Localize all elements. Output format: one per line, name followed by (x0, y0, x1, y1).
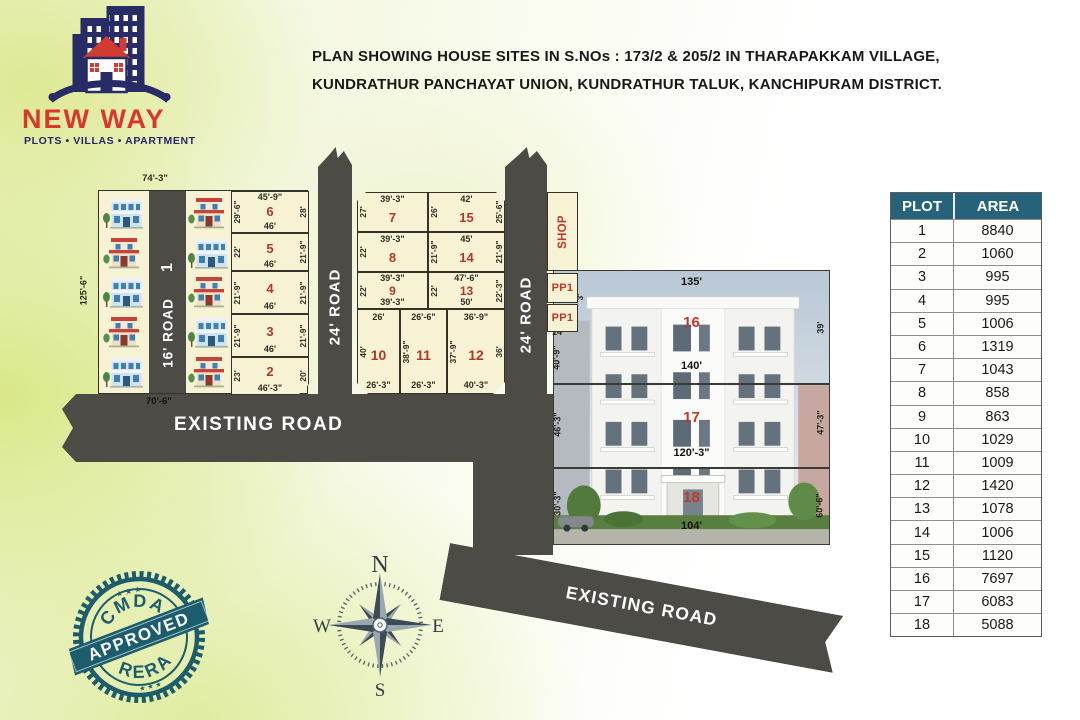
plot-5-bottom-dim: 46' (232, 260, 308, 269)
logo-name: NEW WAY (22, 106, 242, 133)
plot-13: 47'-6" 13 50' 22' 22'-3" (428, 272, 505, 309)
house-slot (188, 355, 230, 388)
block1-top-dim: 74'-3" (100, 174, 210, 184)
plot-3-number: 3 (232, 325, 308, 338)
plot-3: 3 46' 21'-9" 21'-9" (231, 314, 309, 357)
table-row: 18840 (891, 219, 1041, 242)
area-cell: 1120 (953, 545, 1041, 567)
table-row: 4995 (891, 289, 1041, 312)
plot-11-bottom-dim: 26'-3" (401, 381, 446, 390)
plot-17-number: 17 (554, 410, 829, 425)
plot-4: 4 46' 21'-9" 21'-9" (231, 271, 309, 314)
plot-14: 45' 14 21'-9" 21'-9" (428, 232, 505, 272)
road-24ft-right-label: 24' ROAD (519, 277, 534, 354)
plot-6-number: 6 (232, 205, 308, 218)
pp1-box-b: PP1 (547, 304, 578, 332)
area-column-header: AREA (953, 193, 1041, 219)
plot-2-right-dim: 20' (299, 359, 308, 393)
plot-3-right-dim: 21'-9" (299, 319, 308, 353)
existing-road-bottom: 70'-6" EXISTING ROAD (62, 394, 553, 462)
existing-road-diagonal: EXISTING ROAD (439, 543, 843, 673)
plot-cell: 12 (891, 475, 953, 497)
plot-14-number: 14 (429, 251, 504, 264)
plot-cell: 15 (891, 545, 953, 567)
area-table: PLOT AREA 188402106039954995510066131971… (890, 192, 1042, 637)
existing-road-dim: 70'-6" (146, 397, 172, 407)
middle-plots-block: 39'-3" 7 27' 42' 15 26' 25'-6" 39'-3" 8 … (357, 192, 505, 394)
plot-15-left-dim: 26' (430, 195, 439, 229)
plot-4-left-dim: 21'-9" (233, 276, 242, 310)
house-icon (103, 315, 145, 348)
house-icon (103, 236, 145, 269)
plot-cell: 2 (891, 243, 953, 265)
house-icon (103, 275, 145, 308)
house-slot (188, 196, 230, 229)
table-row: 121420 (891, 474, 1041, 497)
house-column-left (99, 193, 149, 391)
plot-13-number: 13 (429, 285, 504, 297)
plot-18-bottom-dim: 104' (554, 521, 829, 532)
plot-7: 39'-3" 7 27' (357, 192, 428, 232)
house-slot (188, 236, 230, 269)
plot-cell: 10 (891, 429, 953, 451)
house-slot (103, 315, 145, 348)
plot-5-left-dim: 22' (233, 235, 242, 269)
plot-6: 45'-9" 6 46' 29'-6" 28' (231, 191, 309, 233)
plot-3-bottom-dim: 46' (232, 345, 308, 354)
plot-4-right-dim: 21'-9" (299, 276, 308, 310)
plot-4-number: 4 (232, 282, 308, 295)
compass-south-label: S (375, 680, 386, 701)
table-row: 21060 (891, 242, 1041, 265)
house-column-right (186, 193, 231, 391)
area-cell: 1006 (953, 521, 1041, 543)
plot-8-number: 8 (358, 251, 427, 264)
plot-cell: 3 (891, 266, 953, 288)
house-icon (103, 196, 145, 229)
pp1-b-label: PP1 (552, 312, 574, 324)
table-row: 101029 (891, 428, 1041, 451)
plot-13-bottom-dim: 50' (429, 298, 504, 307)
area-cell: 863 (953, 406, 1041, 428)
area-cell: 7697 (953, 568, 1041, 590)
area-cell: 995 (953, 266, 1041, 288)
plot-15-right-dim: 25'-6" (495, 195, 504, 229)
plot-7-left-dim: 27' (359, 195, 368, 229)
plot-17-bottom-dim: 120'-3" (554, 448, 829, 459)
plot-11-top-dim: 26'-6" (401, 313, 446, 322)
house-icon (103, 355, 145, 388)
plot-5-right-dim: 21'-9" (299, 235, 308, 269)
plot-12-top-dim: 36'-9" (448, 313, 504, 322)
plot-16-left-dim-b: 40'-9" (553, 341, 562, 375)
area-cell: 1029 (953, 429, 1041, 451)
pp1-box-a: PP1 (547, 273, 578, 303)
plot-15-number: 15 (429, 211, 504, 224)
table-row: 151120 (891, 544, 1041, 567)
plot-9-bottom-dim: 39'-3" (358, 298, 427, 307)
plot-10-left-dim: 40' (359, 335, 368, 369)
plot-16-17-boundary (554, 383, 829, 385)
table-row: 61319 (891, 335, 1041, 358)
table-row: 9863 (891, 405, 1041, 428)
block1-left-dim: 125'-6" (80, 274, 89, 308)
shop-label: SHOP (557, 215, 569, 249)
existing-road-bottom-label: EXISTING ROAD (174, 415, 343, 434)
page-title-line2: KUNDRATHUR PANCHAYAT UNION, KUNDRATHUR T… (312, 76, 972, 93)
plot-column-header: PLOT (891, 193, 953, 219)
house-icon (188, 275, 230, 308)
table-row: 141006 (891, 520, 1041, 543)
plot-cell: 14 (891, 521, 953, 543)
compass-rose-icon: N E S W (313, 548, 447, 703)
plot-16-number: 16 (554, 315, 829, 330)
road-16ft: 1 16' ROAD (149, 191, 186, 393)
plot-17-18-boundary (554, 467, 829, 469)
area-table-body: 1884021060399549955100661319710438858986… (891, 219, 1041, 636)
plot-cell: 9 (891, 406, 953, 428)
plot-2-bottom-dim: 46'-3" (232, 384, 308, 393)
table-row: 111009 (891, 451, 1041, 474)
shop-box: SHOP (547, 192, 578, 271)
plot-1-block: 1 16' ROAD 45'-9" 6 46' 29'-6" 28' 5 (98, 190, 308, 394)
plot-14-left-dim: 21'-9" (430, 235, 439, 269)
compass-north-label: N (371, 552, 388, 578)
house-icon (188, 236, 230, 269)
house-slot (188, 275, 230, 308)
plot-3-left-dim: 21'-9" (233, 319, 242, 353)
area-cell: 1009 (953, 452, 1041, 474)
logo-tagline: PLOTS • VILLAS • APARTMENT (24, 136, 244, 147)
area-cell: 858 (953, 382, 1041, 404)
plot-7-top-dim: 39'-3" (358, 195, 427, 204)
compass-east-label: E (432, 616, 444, 637)
table-row: 71043 (891, 358, 1041, 381)
plot-13-left-dim: 22' (430, 274, 439, 308)
area-cell: 6083 (953, 591, 1041, 613)
plot-cell: 18 (891, 614, 953, 636)
house-slot (188, 315, 230, 348)
plot-2: 2 46'-3" 23' 20' (231, 357, 309, 395)
plot-cell: 5 (891, 313, 953, 335)
existing-road-diagonal-label: EXISTING ROAD (443, 562, 839, 652)
road-16ft-label: 16' ROAD (161, 298, 175, 368)
plot-1-number: 1 (160, 262, 176, 272)
plot-16-right-dim: 39' (817, 311, 826, 345)
plot-5-number: 5 (232, 242, 308, 255)
house-slot (103, 196, 145, 229)
table-row: 3995 (891, 265, 1041, 288)
plot-9-number: 9 (358, 285, 427, 297)
page-title-line1: PLAN SHOWING HOUSE SITES IN S.NOs : 173/… (312, 48, 972, 65)
plot-18-right-dim: 60'-6" (816, 489, 825, 523)
plot-cell: 17 (891, 591, 953, 613)
house-slot (103, 355, 145, 388)
plot-cell: 13 (891, 498, 953, 520)
plot-2-left-dim: 23' (233, 359, 242, 393)
plot-16-bottom-dim: 140' (554, 361, 829, 372)
plot-8-top-dim: 39'-3" (358, 235, 427, 244)
plot-10-top-dim: 26' (358, 313, 399, 322)
area-cell: 1078 (953, 498, 1041, 520)
plot-15-top-dim: 42' (429, 195, 504, 204)
plot-18-number: 18 (554, 490, 829, 505)
plot-6-left-dim: 29'-6" (233, 195, 242, 229)
plot-7-number: 7 (358, 211, 427, 224)
plot-2-number: 2 (232, 365, 308, 378)
table-row: 131078 (891, 497, 1041, 520)
area-table-header: PLOT AREA (891, 193, 1041, 219)
plot-13-top-dim: 47'-6" (429, 274, 504, 283)
table-row: 185088 (891, 613, 1041, 636)
plot-17-left-dim: 46'-3" (554, 408, 563, 442)
compass-west-label: W (313, 616, 331, 637)
plot-cell: 6 (891, 336, 953, 358)
plot-16-top-dim: 135' (554, 277, 829, 288)
plot-14-right-dim: 21'-9" (495, 235, 504, 269)
plot-6-right-dim: 28' (299, 195, 308, 229)
table-row: 51006 (891, 312, 1041, 335)
plot-15: 42' 15 26' 25'-6" (428, 192, 505, 232)
area-cell: 1043 (953, 359, 1041, 381)
pp-dim: 3' (577, 280, 585, 314)
road-24ft-left-label: 24' ROAD (328, 269, 343, 346)
plot-11: 26'-6" 11 26'-3" 38'-9" (400, 309, 447, 394)
plot-9-left-dim: 22' (359, 274, 368, 308)
plot-13-right-dim: 22'-3" (495, 274, 504, 308)
plot-6-top-dim: 45'-9" (232, 193, 308, 202)
pp1-a-label: PP1 (552, 282, 574, 294)
area-cell: 1319 (953, 336, 1041, 358)
plot-12-bottom-dim: 40'-3" (448, 381, 504, 390)
plot-11-left-dim: 38'-9" (402, 335, 411, 369)
area-cell: 995 (953, 290, 1041, 312)
plot-10-bottom-dim: 26'-3" (358, 381, 399, 390)
plot-12-left-dim: 37'-9" (449, 335, 458, 369)
table-row: 8858 (891, 381, 1041, 404)
plot-cell: 4 (891, 290, 953, 312)
plot-9-top-dim: 39'-3" (358, 274, 427, 283)
plot-cell: 7 (891, 359, 953, 381)
area-cell: 1006 (953, 313, 1041, 335)
house-slot (103, 236, 145, 269)
plot-cell: 1 (891, 220, 953, 242)
plot-12: 36'-9" 12 40'-3" 37'-9" 36' (447, 309, 505, 394)
plot-17-right-dim: 47'-3" (817, 406, 826, 440)
area-cell: 5088 (953, 614, 1041, 636)
plot-cell: 16 (891, 568, 953, 590)
site-plan-flyer: NEW WAY PLOTS • VILLAS • APARTMENT PLAN … (0, 0, 1080, 720)
cmda-rera-stamp: ★ ★ ★ CMDA RERA ★ ★ ★ APPROVED (54, 552, 224, 720)
plot-14-top-dim: 45' (429, 235, 504, 244)
plot-6-bottom-dim: 46' (232, 222, 308, 231)
plot-cell: 11 (891, 452, 953, 474)
house-icon (188, 355, 230, 388)
area-cell: 8840 (953, 220, 1041, 242)
house-slot (103, 275, 145, 308)
apartment-photo-block: 135' 16 140' 17 120'-3" 18 104' (553, 270, 830, 545)
plot-cell: 8 (891, 382, 953, 404)
road-connector (473, 458, 553, 555)
plot-10: 26' 10 26'-3" 40' (357, 309, 400, 394)
plot-18-left-dim: 30'-3" (554, 487, 563, 521)
plot-5: 5 46' 22' 21'-9" (231, 233, 309, 271)
plot-8: 39'-3" 8 22' (357, 232, 428, 272)
table-row: 176083 (891, 590, 1041, 613)
plot-12-right-dim: 36' (495, 335, 504, 369)
table-row: 167697 (891, 567, 1041, 590)
newway-logo-icon (40, 4, 180, 106)
area-cell: 1060 (953, 243, 1041, 265)
plot-8-left-dim: 22' (359, 235, 368, 269)
plot-4-bottom-dim: 46' (232, 302, 308, 311)
house-icon (188, 196, 230, 229)
area-cell: 1420 (953, 475, 1041, 497)
plot-9: 39'-3" 9 39'-3" 22' (357, 272, 428, 309)
house-icon (188, 315, 230, 348)
